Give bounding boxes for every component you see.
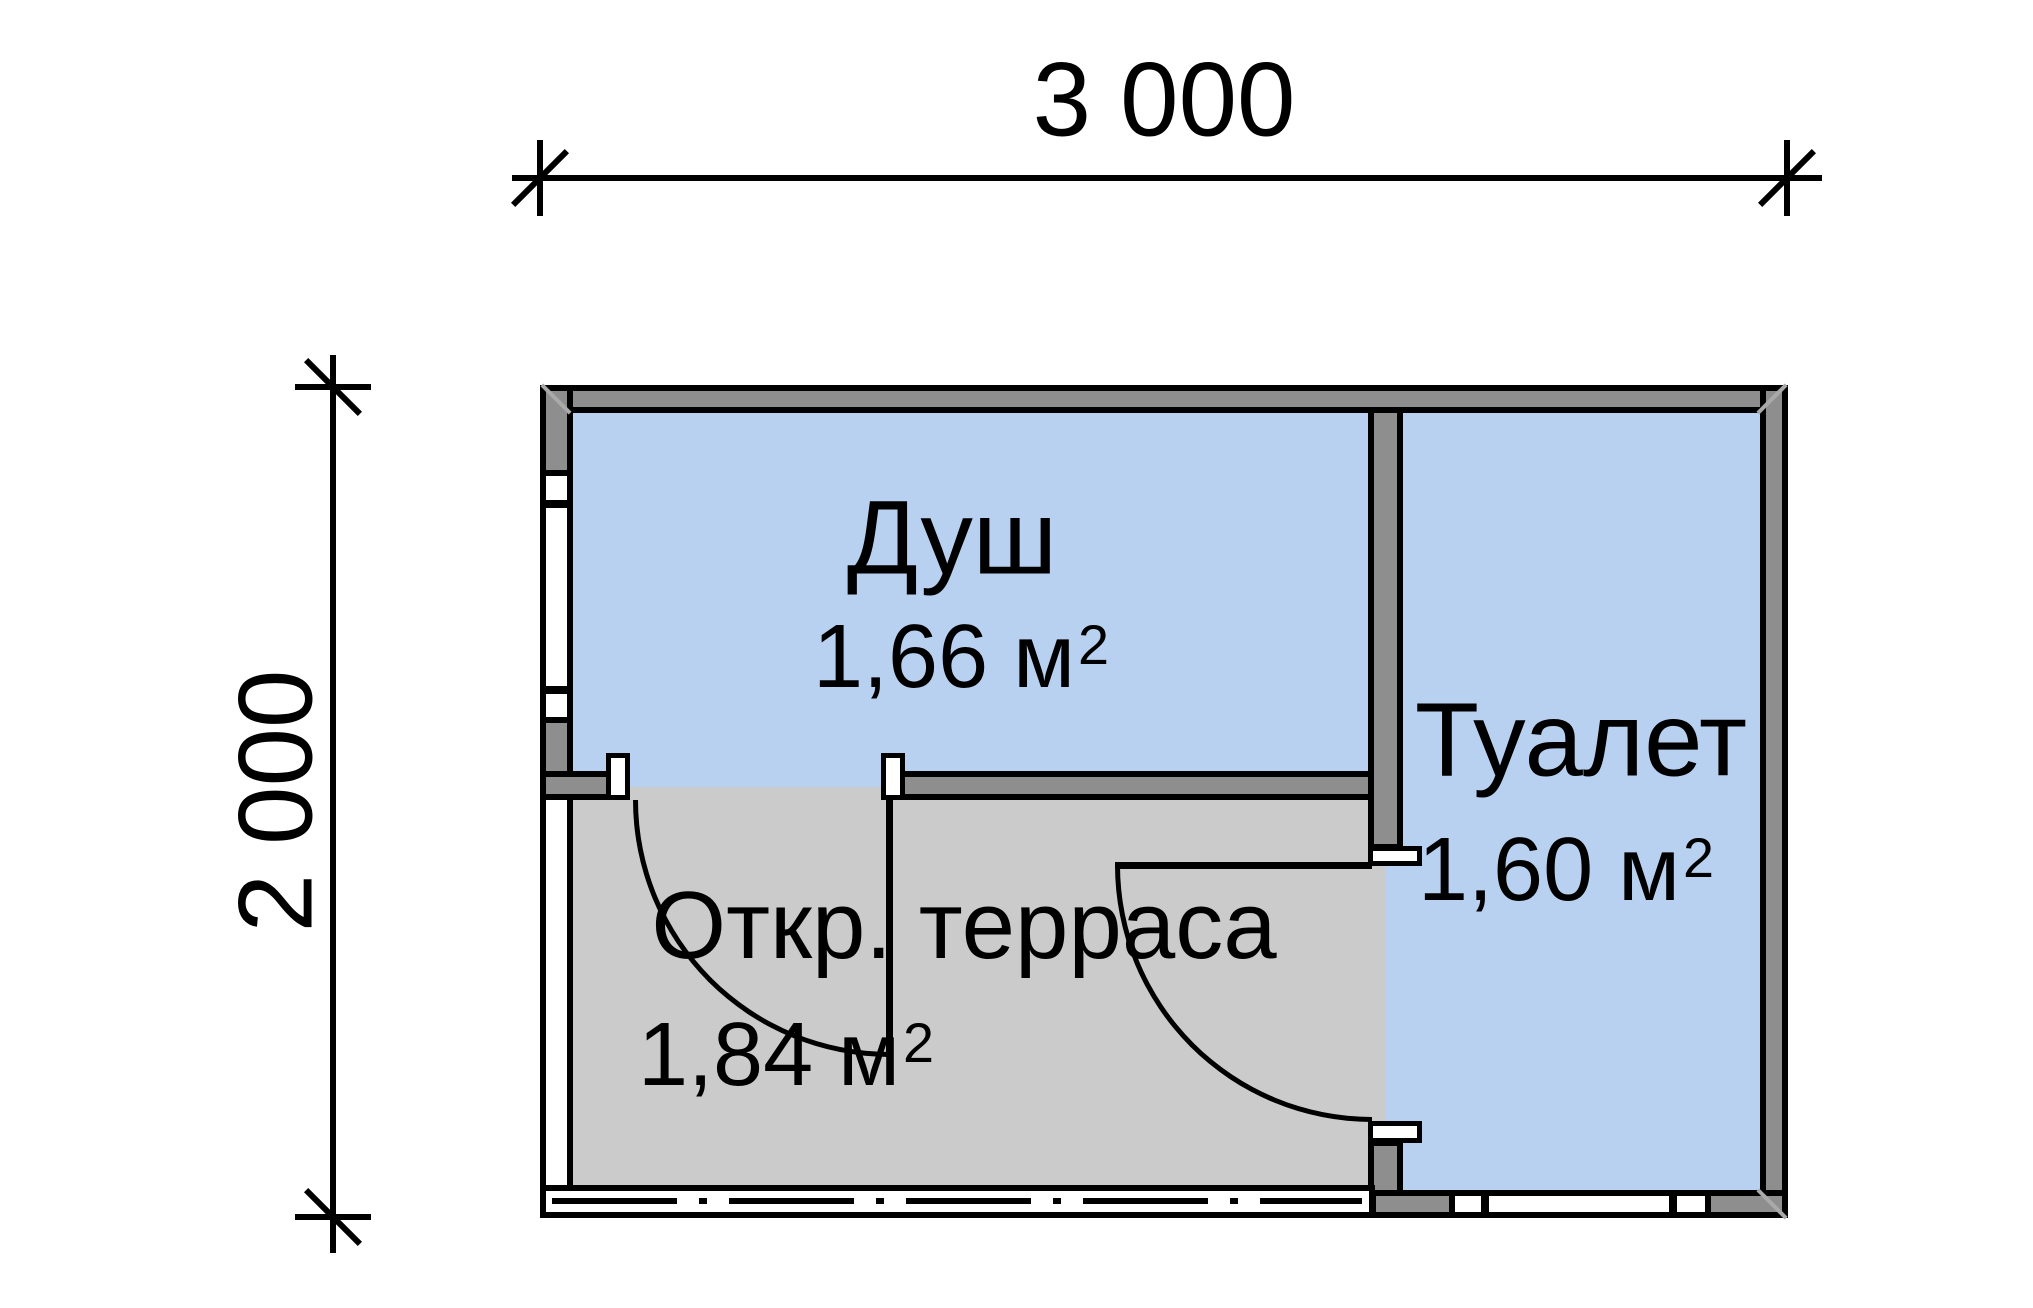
toilet-room-label: Туалет [1415,688,1747,793]
toilet-area-exponent: 2 [1683,826,1714,889]
shower-room-label: Душ [847,486,1057,591]
toilet-room-area: 1,60 м2 [1418,825,1714,915]
wall-shower-right [883,771,1375,800]
window-bottom-bar-left [1481,1190,1489,1218]
floor-plan-canvas: 3 000 2 000 Душ 1,66 м2 Туалет [0,0,2033,1308]
toilet-door-jamb-lower [1368,1121,1422,1143]
toilet-door-jamb-upper [1368,846,1422,866]
toilet-room-floor [1397,407,1766,1196]
shower-door-opening-floor [628,771,883,787]
terrace-edge-left [540,794,573,1218]
wall-top [540,385,1788,413]
window-left-bar-top [540,500,573,508]
toilet-door-opening-floor [1385,866,1405,1121]
toilet-door-leaf [1115,862,1372,869]
terrace-label: Откр. терраса [651,878,1276,974]
terrace-area: 1,84 м2 [638,1010,934,1100]
window-bottom-bar-right [1669,1190,1677,1218]
terrace-area-exponent: 2 [903,1011,934,1074]
shower-door-jamb-left [606,753,630,800]
terrace-area-value: 1,84 м [638,1005,900,1105]
dimension-width-label: 3 000 [1033,48,1296,153]
window-left-bar-bottom [540,686,573,694]
shower-room-area: 1,66 м2 [813,612,1109,702]
shower-area-exponent: 2 [1078,613,1109,676]
dimension-height-label: 2 000 [224,670,329,933]
terrace-edge-axis-line [552,1198,1362,1204]
wall-divider-upper [1368,407,1403,850]
wall-right [1760,385,1788,1218]
toilet-area-value: 1,60 м [1418,820,1680,920]
dimension-line-horizontal [512,175,1822,181]
shower-door-jamb-right [881,753,905,800]
shower-area-value: 1,66 м [813,607,1075,707]
